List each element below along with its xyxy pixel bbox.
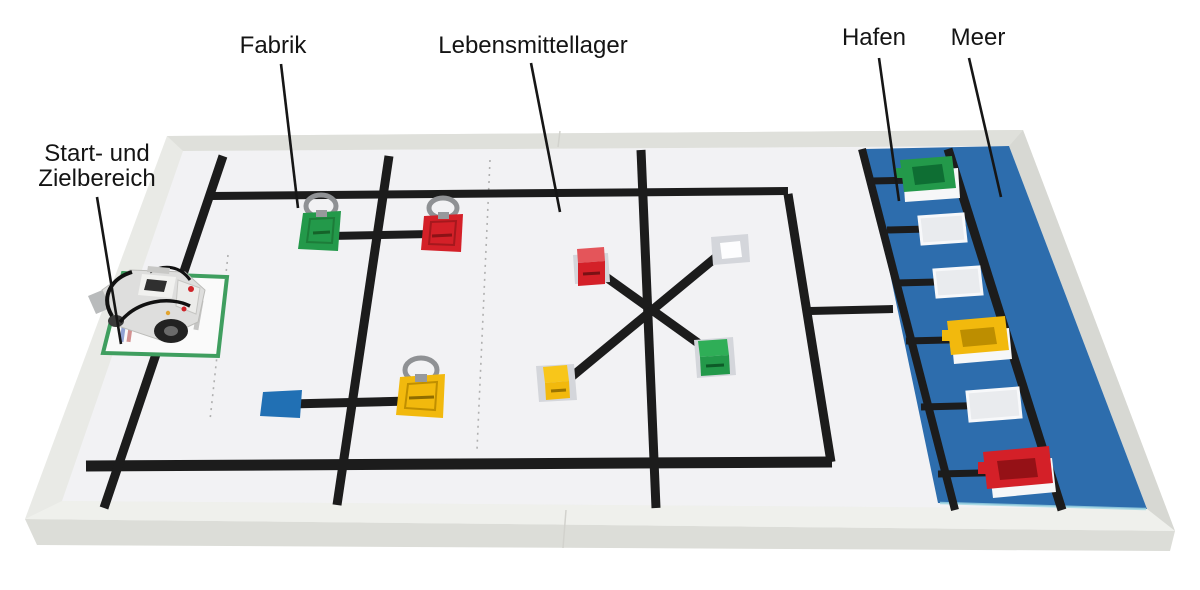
dock-square (967, 388, 1021, 421)
food-marker-frame-empty (711, 234, 750, 265)
field-illustration (0, 0, 1200, 590)
harbor-dock-empty-3 (967, 388, 1021, 421)
dock-square (919, 214, 966, 244)
block-slot (551, 390, 566, 391)
tape-bottom-perimeter (86, 462, 832, 466)
block-top (577, 247, 605, 263)
boat-tab (896, 168, 905, 178)
tape-factory-connector-top (330, 234, 432, 236)
ring-base (316, 210, 327, 217)
ring-base (438, 212, 449, 219)
plate-base (421, 214, 463, 252)
block-top (698, 339, 729, 357)
boat-tab (978, 462, 988, 474)
food-marker-green (694, 337, 736, 378)
robot-accent-red-1 (188, 286, 194, 292)
block-slot (583, 273, 600, 274)
marker-frame-hole (720, 241, 742, 259)
robot-field-photo: Fabrik Lebensmittellager Hafen Meer Star… (0, 0, 1200, 590)
robot-wheel-hub (164, 326, 178, 336)
tape-stub-to-harbor (810, 309, 893, 311)
label-start-area-line2: Zielbereich (34, 166, 160, 191)
robot-screen (144, 279, 167, 292)
label-harbor: Hafen (834, 25, 914, 50)
boat-well (997, 458, 1038, 480)
boat-well (912, 164, 945, 185)
block-slot (706, 365, 724, 366)
robot-accent-orange (166, 311, 170, 315)
block-top (543, 365, 569, 383)
label-start-area-line1: Start- und (34, 141, 160, 166)
start-zone (88, 266, 227, 356)
plate-slot (409, 397, 434, 398)
plate-slot (313, 232, 330, 233)
factory-blue-square (260, 390, 302, 418)
label-start-area: Start- und Zielbereich (34, 141, 160, 192)
label-factory: Fabrik (223, 33, 323, 58)
ring-base (415, 374, 427, 382)
boat-well (960, 327, 997, 347)
boat-tab (942, 330, 952, 341)
tape-factory-connector-bottom (290, 401, 410, 404)
plate-slot (432, 235, 452, 236)
label-sea: Meer (938, 25, 1018, 50)
robot-accent-red-2 (182, 307, 187, 312)
dock-square (934, 267, 982, 297)
food-marker-yellow (536, 364, 577, 402)
harbor-boat-green (896, 156, 960, 202)
label-food-storage: Lebensmittellager (437, 33, 629, 58)
harbor-dock-empty-2 (934, 267, 982, 297)
harbor-dock-empty-1 (919, 214, 966, 244)
